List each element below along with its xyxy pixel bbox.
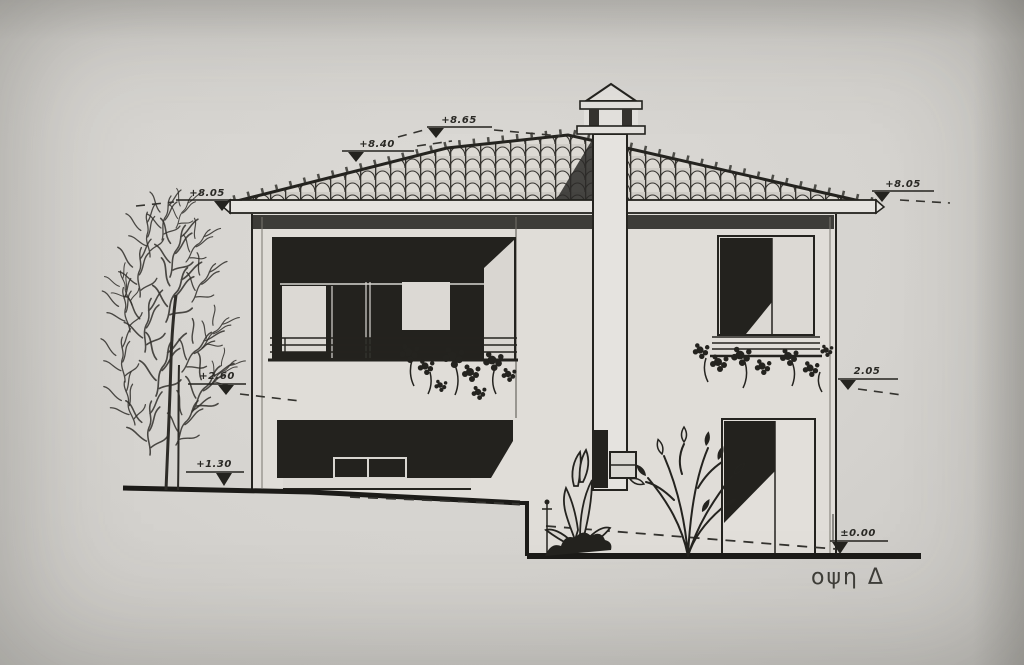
- level-triangle-icon: [218, 385, 234, 395]
- cap-top-slab: [580, 101, 642, 109]
- marker-dashes: [900, 200, 950, 203]
- chimney-base-shadow: [594, 430, 608, 488]
- drawing-title: οψη Δ: [811, 565, 885, 590]
- level-triangle-icon: [348, 152, 364, 162]
- elevation-drawing: +8.05 +8.40 +8.65 +8.05 +2.60 2.05 +1.3: [0, 0, 1024, 665]
- eave-tip-right: [876, 200, 884, 213]
- level-triangle-icon: [216, 473, 232, 486]
- elevation-marker-ground-right: ±0.00: [830, 514, 888, 554]
- marker-value: 2.05: [854, 366, 881, 377]
- marker-value: +8.40: [359, 139, 395, 150]
- marker-dashes: [494, 130, 560, 136]
- cap-post-right: [622, 109, 632, 126]
- marker-dashes: [417, 141, 452, 146]
- eave-shadow-band: [252, 215, 834, 229]
- entrance-door: [722, 419, 815, 558]
- marker-value: +8.05: [885, 179, 921, 190]
- fascia-board: [230, 200, 876, 213]
- marker-dashes: [858, 389, 902, 395]
- marker-value: +8.65: [441, 115, 477, 126]
- marker-dashes: [398, 130, 424, 137]
- marker-value: +2.60: [199, 371, 235, 382]
- ground-step: [520, 503, 527, 556]
- loggia-window-mid: [402, 282, 450, 330]
- elevation-marker-ground-left: +1.30: [186, 459, 244, 486]
- elevation-marker-ridge: +8.65: [398, 115, 560, 138]
- loggia: [272, 237, 516, 361]
- marker-value: +8.05: [189, 188, 225, 199]
- eave-fascia: [222, 200, 884, 213]
- marker-value: ±0.00: [840, 528, 876, 539]
- elevation-marker-floor-right: 2.05: [838, 366, 902, 395]
- tree-trunk-line: [178, 365, 179, 490]
- loggia-window-left: [282, 286, 326, 352]
- chimney-cap: [577, 84, 645, 134]
- level-triangle-icon: [840, 380, 856, 390]
- lamp-head: [545, 500, 550, 505]
- cap-roof: [586, 84, 636, 101]
- cap-post-left: [589, 109, 599, 126]
- roof-tiles: [233, 135, 873, 204]
- opening-shadow: [277, 420, 513, 478]
- cap-base-slab: [577, 126, 645, 134]
- marker-value: +1.30: [196, 459, 232, 470]
- hip-roof: [233, 131, 873, 204]
- tree-trunk: [166, 295, 176, 490]
- window-sill-band: [283, 478, 471, 489]
- tree-left: [98, 186, 246, 490]
- photographed-drawing-sheet: +8.05 +8.40 +8.65 +8.05 +2.60 2.05 +1.3: [0, 0, 1024, 665]
- elevation-marker-eave-right: +8.05: [872, 179, 950, 203]
- level-triangle-icon: [428, 128, 444, 138]
